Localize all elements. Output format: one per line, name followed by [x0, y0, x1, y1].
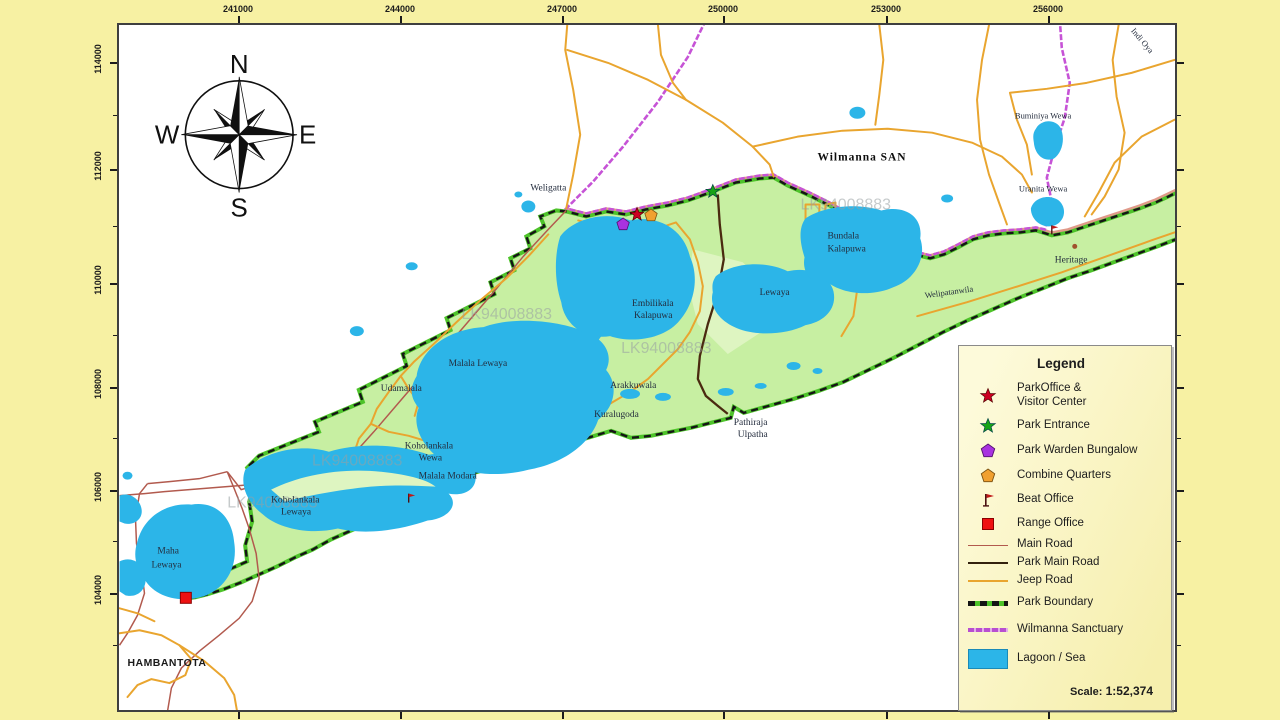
graticule-tick: [1177, 62, 1184, 64]
place-label-bundala-kalapuwa: Bundala: [827, 231, 859, 241]
range-office-square-icon: [959, 515, 1017, 533]
place-label-koholankala-lewaya: Koholankala: [271, 496, 320, 506]
graticule-tick: [1048, 16, 1050, 23]
beat-office-flag-icon: [959, 491, 1017, 509]
graticule-tick: [723, 712, 725, 719]
graticule-tick: [238, 712, 240, 719]
graticule-tick: [886, 16, 888, 23]
graticule-tick: [1177, 226, 1181, 227]
place-label-maha-lewaya: Maha: [157, 546, 179, 556]
graticule-tick: [110, 283, 117, 285]
compass-letter-n: N: [230, 51, 249, 79]
legend-item-park-office: ParkOffice &Visitor Center: [959, 379, 1171, 413]
coord-label-top: 250000: [701, 4, 745, 14]
park-main-road-line-icon: [959, 562, 1017, 564]
place-label-koholankala-lewaya: Lewaya: [281, 508, 312, 518]
coord-label-left: 112000: [93, 146, 103, 186]
legend-item-range-office: Range Office: [959, 512, 1171, 536]
pond: [521, 200, 535, 212]
coord-label-left: 106000: [93, 467, 103, 507]
graticule-tick: [1177, 593, 1184, 595]
coord-label-top: 247000: [540, 4, 584, 14]
place-label-bundala-kalapuwa: Kalapuwa: [827, 244, 866, 254]
legend-title: Legend: [1037, 356, 1171, 371]
legend-panel: Legend ParkOffice &Visitor Center Park E…: [958, 345, 1172, 711]
city-label-hambantota: HAMBANTOTA: [128, 658, 207, 669]
bundala-park-map-page: 241000 244000 247000 250000 253000 25600…: [0, 0, 1280, 720]
place-label-arakkuwala: Arakkuwala: [610, 381, 657, 391]
main-road-line-icon: [959, 545, 1017, 546]
combine-quarters-pentagon-icon: [959, 467, 1017, 485]
watermark-text: LK94008883: [462, 306, 553, 323]
graticule-tick: [1177, 169, 1184, 171]
wilmanna-sanctuary-dash-icon: [959, 628, 1017, 632]
legend-item-wilmanna-sanctuary: Wilmanna Sanctuary: [959, 616, 1171, 644]
graticule-tick: [723, 16, 725, 23]
place-label-embilikala: Kalapuwa: [634, 311, 673, 321]
compass-letter-s: S: [231, 194, 248, 222]
graticule-tick: [1177, 115, 1181, 116]
pond: [755, 383, 767, 389]
watermark-text: LK94008883: [801, 196, 892, 213]
graticule-tick: [113, 438, 117, 439]
graticule-tick: [110, 62, 117, 64]
lagoon-sea-swatch-icon: [959, 649, 1017, 669]
coord-label-top: 256000: [1026, 4, 1070, 14]
graticule-tick: [400, 16, 402, 23]
graticule-tick: [113, 645, 117, 646]
park-entrance-star-icon: [959, 417, 1017, 435]
graticule-tick: [238, 16, 240, 23]
legend-item-main-road: Main Road: [959, 536, 1171, 554]
pond: [655, 393, 671, 401]
graticule-tick: [110, 387, 117, 389]
graticule-tick: [1177, 438, 1181, 439]
pond: [350, 326, 364, 336]
coord-label-left: 110000: [93, 260, 103, 300]
pond: [813, 368, 823, 374]
graticule-tick: [113, 335, 117, 336]
graticule-tick: [113, 115, 117, 116]
graticule-tick: [113, 541, 117, 542]
legend-item-park-main-road: Park Main Road: [959, 554, 1171, 572]
pond: [718, 388, 734, 396]
scale-value: 1:52,374: [1106, 684, 1153, 698]
place-label-malala-lewaya: Malala Lewaya: [449, 359, 508, 369]
place-label-uranita-wewa: Uranita Wewa: [1019, 184, 1068, 194]
pond: [406, 262, 418, 270]
graticule-tick: [1177, 490, 1184, 492]
legend-item-combine-quarters: Combine Quarters: [959, 463, 1171, 488]
jeep-road-line-icon: [959, 580, 1017, 582]
region-label-wilmanna-san: Wilmanna SAN: [818, 152, 907, 164]
place-label-pathiraja-ulpatha: Pathiraja: [734, 418, 768, 428]
graticule-tick: [400, 712, 402, 719]
place-label-udamalala: Udamalala: [381, 384, 423, 394]
pond: [849, 107, 865, 119]
graticule-tick: [113, 226, 117, 227]
watermark-text: LK94008883: [621, 340, 712, 357]
graticule-tick: [1177, 387, 1184, 389]
coord-label-left: 104000: [93, 570, 103, 610]
graticule-tick: [1177, 541, 1181, 542]
lagoon-embilikala-kalapuwa: [556, 216, 695, 339]
place-label-kuralugoda: Kuralugoda: [594, 410, 639, 420]
graticule-tick: [1177, 335, 1181, 336]
graticule-tick: [110, 593, 117, 595]
place-label-weligatta: Weligatta: [530, 184, 567, 194]
range-office-marker: [180, 592, 191, 603]
graticule-tick: [1177, 283, 1184, 285]
legend-item-lagoon-sea: Lagoon / Sea: [959, 644, 1171, 674]
place-label-koholankala-wewa: Koholankala: [405, 442, 454, 452]
coord-label-top: 253000: [864, 4, 908, 14]
legend-item-park-boundary: Park Boundary: [959, 590, 1171, 616]
graticule-tick: [1048, 712, 1050, 719]
compass-letter-e: E: [299, 122, 316, 150]
watermark-text: LK94008883: [312, 453, 403, 470]
place-label-malala-modara: Malala Modara: [419, 472, 478, 482]
graticule-tick: [562, 16, 564, 23]
place-label-maha-lewaya: Lewaya: [151, 560, 182, 570]
scale-label: Scale:: [1070, 686, 1102, 698]
pond: [123, 472, 133, 480]
place-label-embilikala: Embilikala: [632, 299, 674, 309]
coord-label-top: 244000: [378, 4, 422, 14]
coord-label-top: 241000: [216, 4, 260, 14]
legend-item-jeep-road: Jeep Road: [959, 572, 1171, 590]
graticule-tick: [886, 712, 888, 719]
park-boundary-dash-icon: [959, 601, 1017, 606]
pond: [941, 195, 953, 203]
coord-label-left: 114000: [93, 39, 103, 79]
graticule-tick: [562, 712, 564, 719]
place-label-koholankala-wewa: Wewa: [419, 454, 443, 464]
graticule-tick: [1177, 645, 1181, 646]
pond: [514, 192, 522, 198]
heritage-marker: [1072, 244, 1077, 249]
legend-item-beat-office: Beat Office: [959, 488, 1171, 512]
coord-label-left: 108000: [93, 364, 103, 404]
park-warden-pentagon-icon: [959, 442, 1017, 460]
legend-item-park-warden-bungalow: Park Warden Bungalow: [959, 438, 1171, 463]
park-office-star-icon: [959, 387, 1017, 405]
place-label-lewaya: Lewaya: [760, 288, 791, 298]
place-label-pathiraja-ulpatha: Ulpatha: [738, 430, 769, 440]
map-scale: Scale: 1:52,374: [959, 684, 1171, 698]
legend-item-park-entrance: Park Entrance: [959, 413, 1171, 438]
pond: [787, 362, 801, 370]
place-label-buminiya-wewa: Buminiya Wewa: [1015, 111, 1072, 121]
compass-letter-w: W: [155, 122, 180, 150]
graticule-tick: [110, 490, 117, 492]
place-label-heritage: Heritage: [1055, 255, 1088, 265]
graticule-tick: [110, 169, 117, 171]
